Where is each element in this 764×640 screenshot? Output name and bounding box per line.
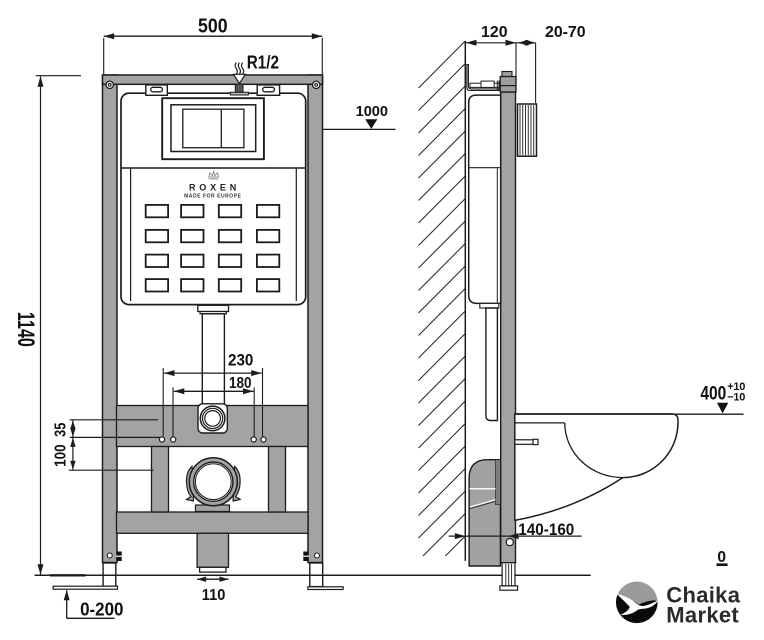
svg-text:180: 180 [229, 375, 252, 392]
svg-text:0: 0 [717, 549, 726, 566]
svg-text:ROXEN: ROXEN [189, 182, 240, 192]
svg-text:110: 110 [202, 587, 226, 604]
svg-text:Market: Market [666, 602, 739, 627]
svg-text:120: 120 [481, 24, 508, 41]
svg-text:35: 35 [52, 422, 69, 436]
svg-text:1140: 1140 [12, 312, 39, 347]
svg-text:R1/2: R1/2 [247, 52, 279, 73]
svg-text:400: 400 [700, 383, 726, 404]
svg-text:0-200: 0-200 [80, 599, 123, 620]
svg-text:230: 230 [228, 350, 253, 369]
svg-text:−10: −10 [727, 392, 745, 404]
svg-text:20-70: 20-70 [545, 24, 586, 41]
svg-text:140-160: 140-160 [518, 520, 574, 539]
svg-text:500: 500 [198, 15, 228, 38]
svg-text:MADE FOR EUROPE: MADE FOR EUROPE [184, 194, 242, 200]
svg-text:100: 100 [52, 444, 69, 467]
svg-text:1000: 1000 [356, 103, 388, 120]
